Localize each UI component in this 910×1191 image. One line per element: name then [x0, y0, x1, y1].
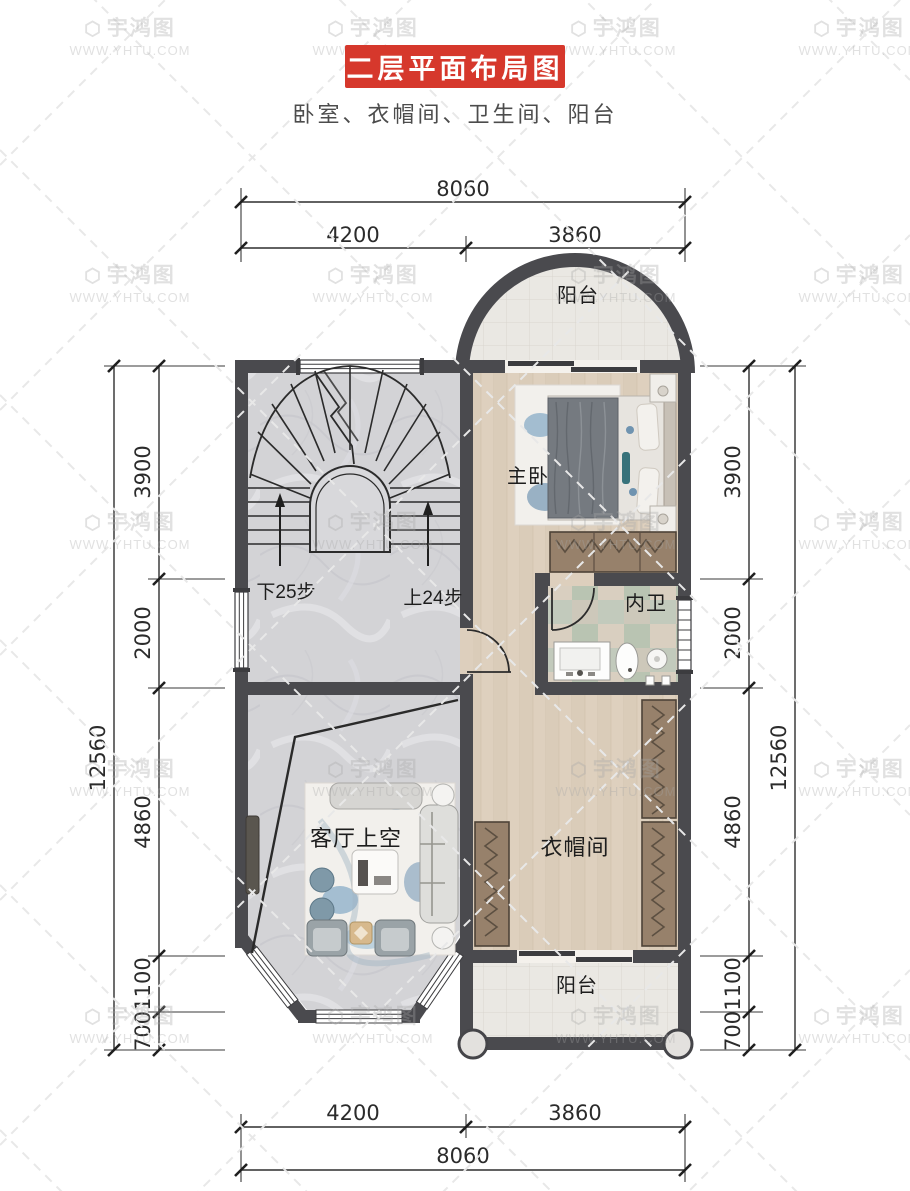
wall-balcony-bottom: [466, 1037, 685, 1050]
stair-label-up: 上24步: [403, 587, 462, 609]
dimension-right: 3900 2000 4860 1100 700 12560: [700, 360, 806, 1056]
sliding-door-balcony-bottom: [517, 950, 633, 963]
side-table-round-top: [432, 784, 454, 806]
armchair-2: [375, 920, 415, 956]
toilet: [616, 643, 638, 679]
dim-top-seg2: 3860: [548, 223, 601, 247]
dimension-left: 3900 2000 4860 1100 700 12560: [86, 360, 225, 1056]
dim-left-seg1: 3900: [131, 445, 155, 498]
window-left-wall: [233, 588, 250, 672]
floor-plan: 下25步 上24步: [0, 0, 910, 1191]
dimension-top: 8060 4200 3860: [235, 177, 691, 262]
page-title: 二层平面布局图: [347, 47, 564, 86]
window-bay-bottom: [316, 1010, 402, 1023]
room-label-balcony-top: 阳台: [557, 284, 599, 307]
sliding-door-balcony-top: [505, 360, 640, 373]
dim-left-seg3: 4860: [131, 795, 155, 848]
side-table-round-bottom: [432, 927, 454, 949]
nightstand-top: [650, 374, 676, 402]
floor-plan-page: 下25步 上24步: [0, 0, 910, 1191]
dim-bottom-total: 8060: [436, 1144, 489, 1168]
dim-bottom-seg2: 3860: [548, 1101, 601, 1125]
dim-left-seg4: 1100: [131, 957, 155, 1010]
pouf-2: [310, 898, 334, 922]
stair-label-down: 下25步: [256, 581, 315, 603]
dim-left-total: 12560: [86, 725, 110, 792]
page-subtitle: 卧室、衣帽间、卫生间、阳台: [0, 97, 910, 129]
window-bathroom-right: [676, 596, 693, 674]
tea-table: [350, 922, 372, 944]
dim-right-seg1: 3900: [721, 445, 745, 498]
stair-well-arch: [310, 466, 390, 552]
column-right: [664, 1030, 692, 1058]
vanity: [554, 642, 610, 680]
wall-stair-divider-lower: [460, 672, 473, 1050]
dim-right-seg5: 700: [721, 1011, 745, 1051]
wall-right: [678, 360, 691, 1037]
pouf-1: [310, 868, 334, 892]
coffee-table: [352, 850, 398, 894]
dim-right-seg2: 2000: [721, 606, 745, 659]
wardrobe-left: [475, 822, 509, 946]
dim-bottom-seg1: 4200: [326, 1101, 379, 1125]
bench-sofa: [330, 783, 422, 809]
dim-left-seg2: 2000: [131, 606, 155, 659]
armchair-1: [307, 920, 347, 956]
room-label-ensuite: 内卫: [625, 592, 667, 615]
title-banner: 二层平面布局图: [345, 45, 565, 88]
room-label-balcony-bottom: 阳台: [556, 974, 598, 997]
dim-left-seg5: 700: [131, 1011, 155, 1051]
wardrobe-right-lower: [642, 822, 676, 946]
bed: [548, 393, 676, 523]
dim-top-total: 8060: [436, 177, 489, 201]
dim-top-seg1: 4200: [326, 223, 379, 247]
wall-living-top: [235, 682, 473, 695]
wardrobe-right-upper: [642, 700, 676, 818]
room-label-living-void: 客厅上空: [310, 826, 402, 851]
dimension-bottom: 4200 3860 8060: [235, 1101, 691, 1182]
nightstand-bottom: [650, 506, 676, 534]
room-label-master-bedroom: 主卧: [507, 465, 549, 488]
wall-bath-left: [535, 573, 548, 695]
room-label-cloakroom: 衣帽间: [540, 835, 609, 860]
sofa: [420, 805, 458, 923]
tv-panel: [246, 816, 259, 894]
column-left: [459, 1030, 487, 1058]
dim-right-seg4: 1100: [721, 957, 745, 1010]
bedroom-wardrobe: [550, 532, 676, 572]
dim-right-total: 12560: [767, 725, 791, 792]
dim-right-seg3: 4860: [721, 795, 745, 848]
